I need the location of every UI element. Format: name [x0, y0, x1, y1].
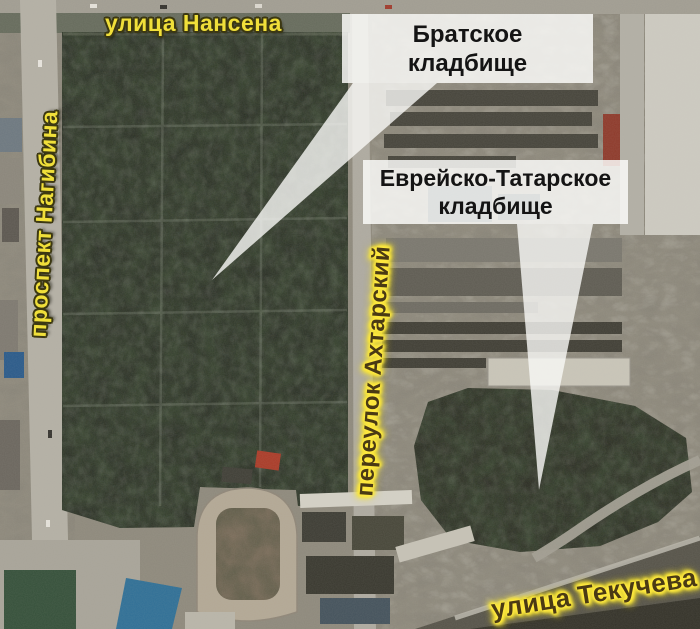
callout-jewish-tatar-line2: кладбище [438, 192, 552, 220]
satellite-image [0, 0, 700, 629]
callout-bratskoe-line2: кладбище [408, 49, 527, 78]
street-label-nansena: улица Нансена [96, 10, 291, 37]
callout-bratskoe: Братское кладбище [342, 14, 593, 83]
callout-jewish-tatar-line1: Еврейско-Татарское [380, 164, 611, 192]
callout-bratskoe-line1: Братское [413, 20, 523, 49]
satellite-map: улица Нансена проспект Нагибина переулок… [0, 0, 700, 629]
callout-jewish-tatar: Еврейско-Татарское кладбище [363, 160, 628, 224]
